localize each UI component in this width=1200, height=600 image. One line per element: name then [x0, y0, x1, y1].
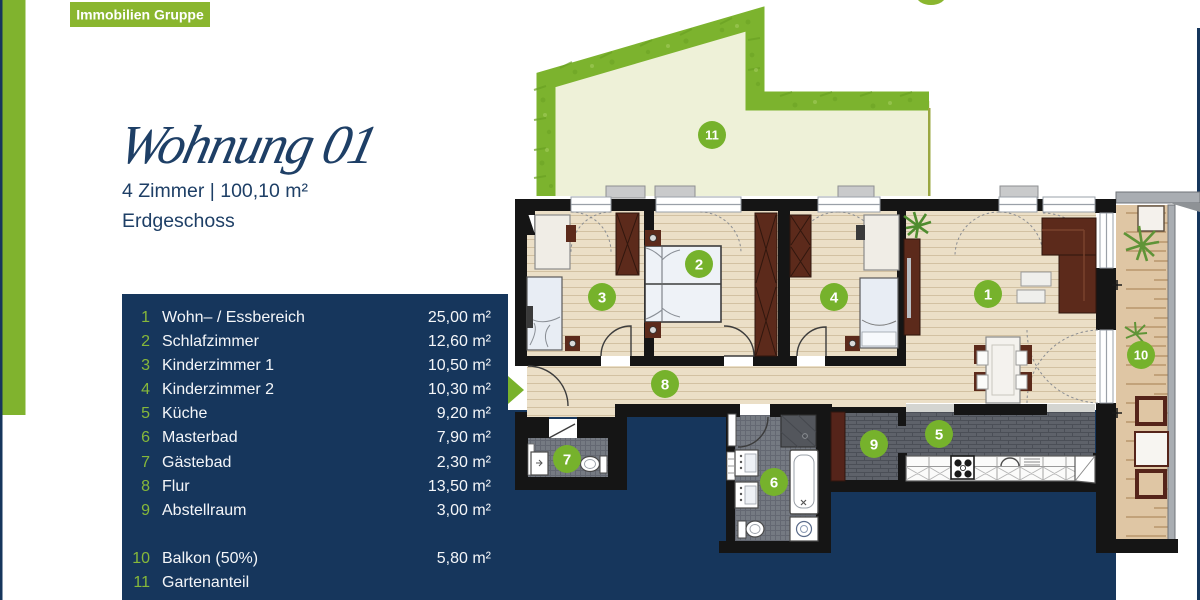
svg-text:Wohnung 01: Wohnung 01	[113, 115, 382, 176]
svg-text:9: 9	[141, 502, 150, 519]
svg-text:2: 2	[141, 333, 150, 350]
svg-text:11: 11	[133, 574, 150, 591]
svg-text:9: 9	[870, 437, 878, 454]
svg-text:7,90 m²: 7,90 m²	[437, 429, 492, 446]
svg-text:4 Zimmer | 100,10 m²: 4 Zimmer | 100,10 m²	[122, 180, 309, 202]
svg-text:Gartenanteil: Gartenanteil	[162, 574, 249, 591]
svg-text:3: 3	[141, 357, 150, 374]
svg-text:25,00 m²: 25,00 m²	[428, 309, 492, 326]
svg-text:2,30 m²: 2,30 m²	[437, 454, 492, 471]
svg-text:Küche: Küche	[162, 405, 207, 422]
svg-text:Gästebad: Gästebad	[162, 454, 231, 471]
svg-text:3: 3	[598, 290, 606, 307]
svg-text:1: 1	[984, 287, 992, 304]
svg-text:10: 10	[132, 550, 150, 567]
svg-text:Schlafzimmer: Schlafzimmer	[162, 333, 260, 350]
svg-text:10,50 m²: 10,50 m²	[428, 357, 492, 374]
svg-text:Erdgeschoss: Erdgeschoss	[122, 210, 235, 232]
svg-text:5: 5	[141, 405, 150, 422]
svg-text:Wohn– / Essbereich: Wohn– / Essbereich	[162, 309, 305, 326]
svg-text:6: 6	[141, 429, 150, 446]
svg-text:Kinderzimmer 2: Kinderzimmer 2	[162, 381, 274, 398]
svg-text:12,60 m²: 12,60 m²	[428, 333, 492, 350]
svg-text:4: 4	[830, 290, 839, 307]
svg-text:8: 8	[141, 478, 150, 495]
svg-text:7: 7	[563, 452, 571, 469]
svg-text:Kinderzimmer 1: Kinderzimmer 1	[162, 357, 274, 374]
svg-text:Masterbad: Masterbad	[162, 429, 238, 446]
svg-text:11: 11	[705, 128, 719, 143]
svg-text:Balkon (50%): Balkon (50%)	[162, 550, 258, 567]
svg-text:13,50 m²: 13,50 m²	[428, 478, 492, 495]
svg-text:3,00 m²: 3,00 m²	[437, 502, 492, 519]
svg-text:7: 7	[141, 454, 150, 471]
svg-text:4: 4	[141, 381, 150, 398]
svg-text:5: 5	[935, 427, 943, 444]
svg-text:9,20 m²: 9,20 m²	[437, 405, 492, 422]
svg-text:8: 8	[661, 377, 669, 394]
svg-text:10,30 m²: 10,30 m²	[428, 381, 492, 398]
svg-text:Immobilien Gruppe: Immobilien Gruppe	[76, 7, 204, 23]
svg-text:2: 2	[695, 257, 703, 274]
svg-text:6: 6	[770, 475, 778, 492]
svg-text:10: 10	[1134, 348, 1148, 363]
svg-text:Flur: Flur	[162, 478, 190, 495]
svg-text:1: 1	[141, 309, 150, 326]
svg-text:5,80 m²: 5,80 m²	[437, 550, 492, 567]
svg-text:Abstellraum: Abstellraum	[162, 502, 246, 519]
